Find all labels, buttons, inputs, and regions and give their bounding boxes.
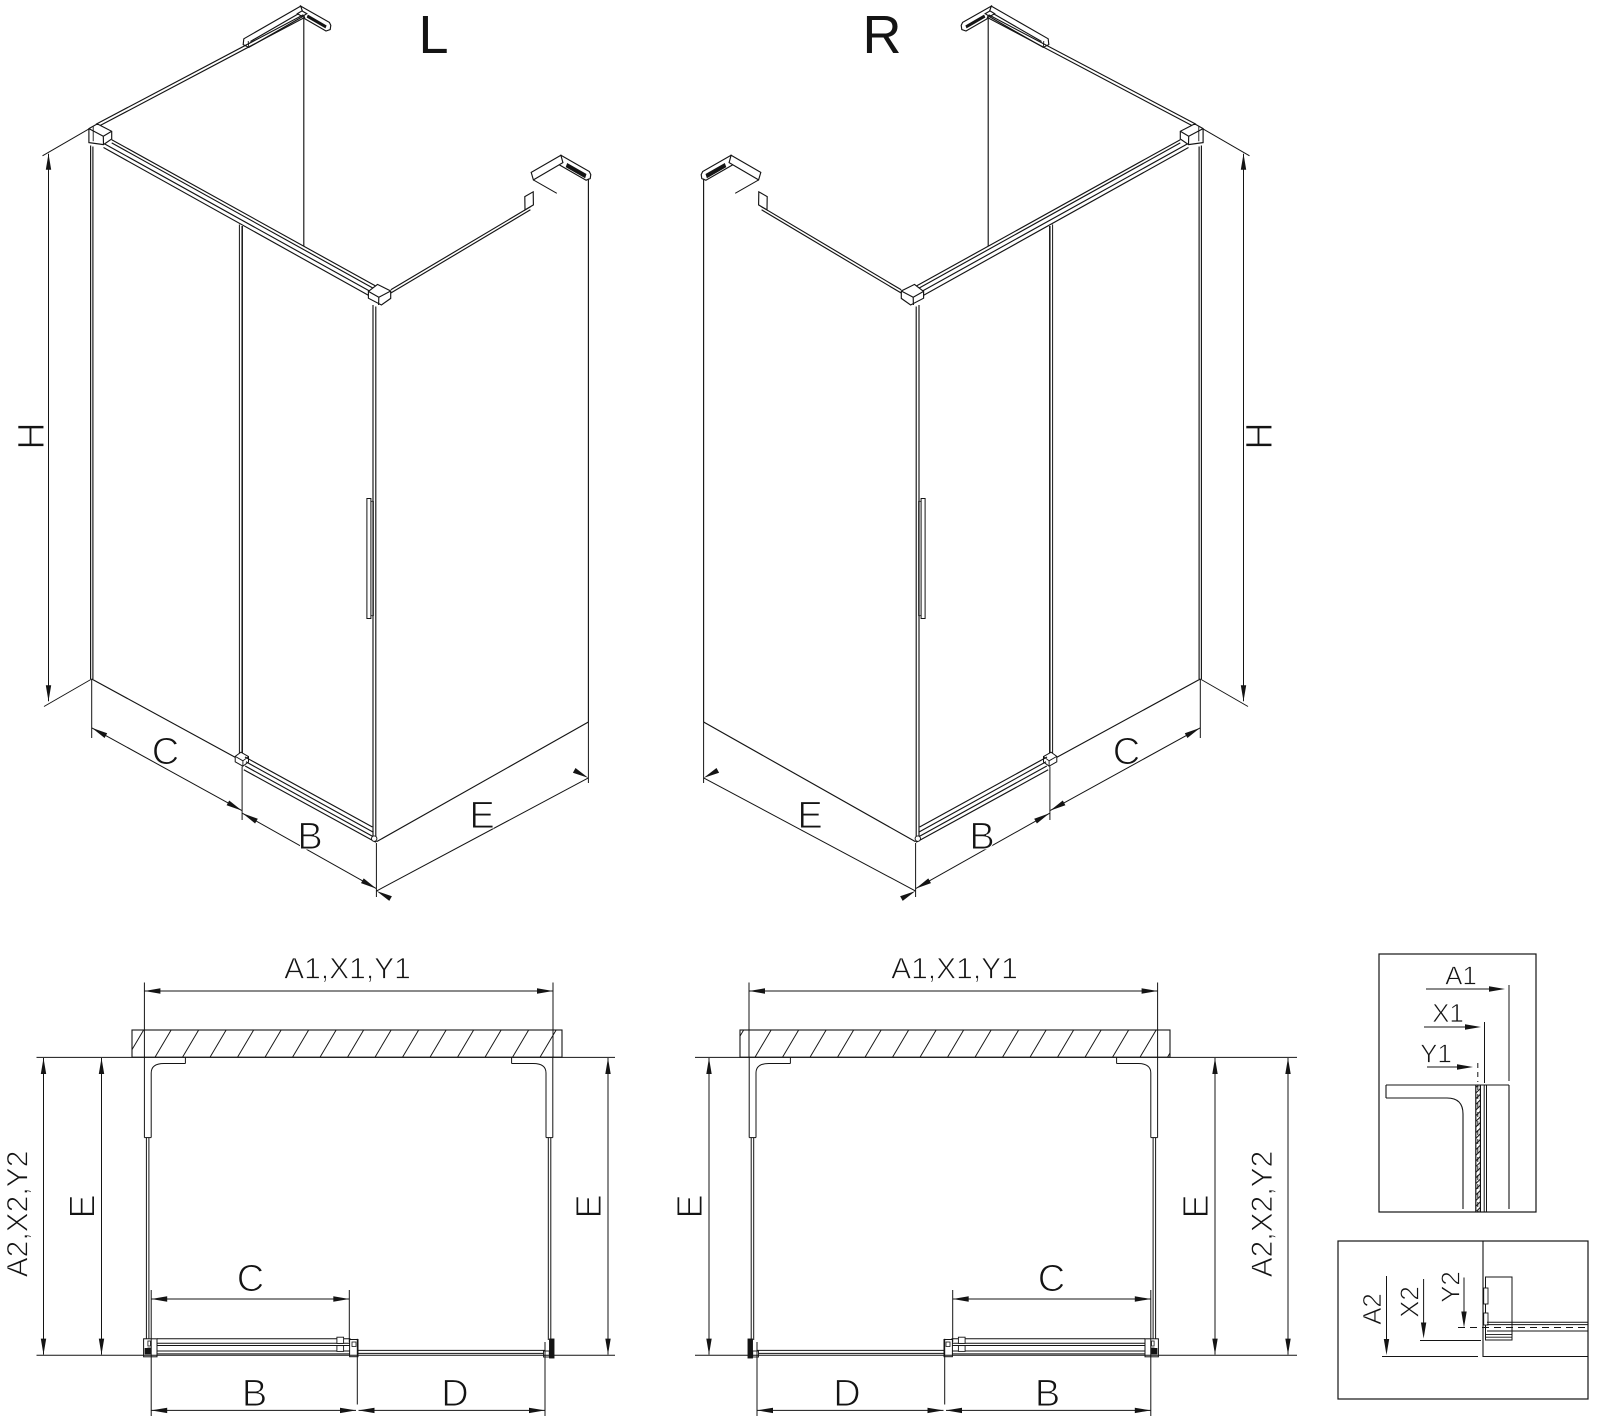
svg-text:D: D — [833, 1373, 860, 1415]
svg-text:E: E — [797, 795, 822, 837]
svg-text:E: E — [669, 1194, 710, 1218]
svg-text:E: E — [1175, 1194, 1216, 1218]
svg-text:A1: A1 — [1445, 961, 1477, 991]
svg-text:E: E — [469, 795, 494, 837]
svg-text:E: E — [62, 1194, 103, 1218]
svg-text:A2,X2,Y2: A2,X2,Y2 — [2, 1151, 35, 1278]
svg-text:C: C — [1113, 731, 1140, 773]
svg-text:A2,X2,Y2: A2,X2,Y2 — [1246, 1151, 1279, 1278]
svg-text:A1,X1,Y1: A1,X1,Y1 — [284, 953, 411, 986]
svg-text:X1: X1 — [1432, 998, 1464, 1028]
svg-text:Y1: Y1 — [1420, 1039, 1452, 1069]
svg-text:B: B — [242, 1373, 267, 1415]
svg-text:R: R — [863, 5, 902, 65]
svg-text:C: C — [237, 1258, 264, 1300]
svg-text:H: H — [1239, 422, 1281, 449]
svg-text:B: B — [1035, 1373, 1060, 1415]
svg-text:Y2: Y2 — [1436, 1271, 1466, 1303]
svg-text:X2: X2 — [1395, 1286, 1425, 1318]
svg-text:E: E — [568, 1194, 609, 1218]
svg-text:A1,X1,Y1: A1,X1,Y1 — [891, 953, 1018, 986]
svg-text:H: H — [11, 422, 53, 449]
svg-text:B: B — [297, 816, 322, 858]
svg-text:C: C — [1038, 1258, 1065, 1300]
svg-text:B: B — [969, 816, 994, 858]
svg-text:D: D — [441, 1373, 468, 1415]
svg-text:A2: A2 — [1357, 1293, 1387, 1325]
svg-text:C: C — [152, 731, 179, 773]
svg-text:L: L — [418, 5, 448, 65]
